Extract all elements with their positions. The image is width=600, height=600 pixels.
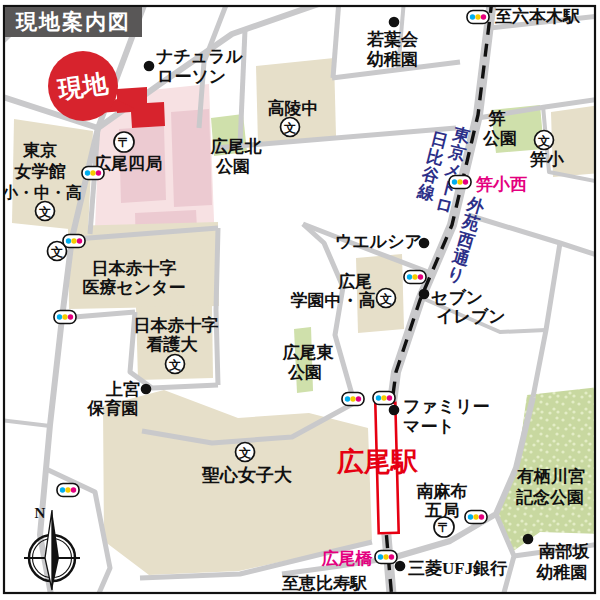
traffic-light-lamp [350, 396, 355, 401]
traffic-light-icon [57, 484, 79, 497]
map-label: 三菱UFJ銀行 [408, 559, 507, 578]
poi-dot [389, 405, 400, 416]
map-label: 有栖川宮 [516, 467, 585, 486]
school-icon-glyph: 文 [168, 358, 181, 372]
map-label: 南麻布 [417, 482, 468, 501]
traffic-light-lamp [85, 170, 90, 175]
traffic-light-icon [82, 167, 104, 180]
map-label: 東京 [22, 141, 57, 160]
map-label: 看護大 [146, 335, 199, 354]
traffic-light-lamp [452, 179, 457, 184]
compass-north-label: N [35, 505, 46, 521]
map-title: 現地案内図 [5, 7, 142, 37]
traffic-light-lamp [457, 179, 462, 184]
traffic-light-lamp [481, 14, 486, 19]
traffic-light-lamp [473, 514, 478, 519]
post-office-icon: 〒 [434, 517, 454, 537]
map-label: 女学館 [14, 162, 66, 181]
map-label: 至六本木駅 [495, 6, 581, 26]
post-office-icon-glyph: 〒 [118, 135, 131, 150]
road [533, 243, 560, 397]
poi-dot [523, 534, 534, 545]
traffic-light-lamp [57, 314, 62, 319]
traffic-light-lamp [71, 487, 76, 492]
traffic-light-lamp [66, 238, 71, 243]
map-label: ローソン [157, 67, 226, 86]
traffic-light-lamp [475, 14, 480, 19]
map-label: 小・中・高 [1, 183, 82, 201]
traffic-light-lamp [463, 179, 468, 184]
map-label: 日本赤十字 [134, 315, 219, 335]
road [0, 420, 50, 426]
map-label: 記念公園 [515, 488, 584, 507]
traffic-light-lamp [407, 274, 412, 279]
map-label-char: 線 [415, 181, 438, 204]
traffic-light-lamp [376, 395, 381, 400]
post-office-icon: 〒 [114, 132, 134, 152]
school-icon: 文 [535, 131, 554, 150]
poi-dot [141, 384, 152, 395]
poi-dot [419, 238, 430, 249]
traffic-light-icon [342, 393, 364, 406]
map-label: 高陵中 [268, 98, 319, 118]
traffic-light-lamp [345, 396, 350, 401]
map-label: 幼稚園 [366, 50, 418, 69]
traffic-light-lamp [378, 554, 383, 559]
map-label: 広尾北 [210, 137, 263, 156]
map-label: 笄 [488, 109, 506, 128]
compass-needle-east [52, 510, 59, 590]
poi-dot [395, 561, 406, 572]
map-label: マート [403, 417, 455, 436]
map-label: 幼稚園 [536, 563, 588, 582]
map-label: 広尾東 [282, 343, 335, 362]
map-label: 広尾 [337, 272, 372, 291]
traffic-light-lamp [479, 514, 484, 519]
map-label: 上宮 [105, 380, 140, 399]
compass: N [24, 505, 80, 590]
map-label: 公園 [287, 363, 322, 382]
school-icon: 文 [236, 443, 255, 462]
map-label: 聖心女子大 [201, 465, 292, 485]
traffic-light-icon [449, 176, 471, 189]
map-label-char: り [445, 264, 467, 287]
traffic-light-lamp [383, 554, 388, 559]
traffic-light-lamp [418, 274, 423, 279]
traffic-light-lamp [96, 170, 101, 175]
map-label: 広尾橋 [321, 549, 374, 568]
traffic-light-lamp [389, 554, 394, 559]
traffic-light-lamp [470, 14, 475, 19]
traffic-light-lamp [412, 274, 417, 279]
map-label: ウエルシア [335, 232, 422, 251]
traffic-light-lamp [62, 314, 67, 319]
traffic-light-lamp [90, 170, 95, 175]
map-label: 至恵比寿駅 [282, 574, 368, 593]
map-label: 笄小西 [475, 175, 527, 194]
map-label: ファミリー [403, 397, 490, 416]
map-label: 日本赤十字 [92, 258, 177, 278]
traffic-light-lamp [381, 395, 386, 400]
school-icon-glyph: 文 [238, 446, 251, 460]
traffic-light-icon [404, 271, 426, 284]
school-icon-glyph: 文 [50, 245, 63, 259]
map-label: 保育園 [87, 398, 139, 418]
traffic-light-icon [63, 235, 85, 248]
poi-dot [389, 17, 400, 28]
poi-dot [419, 289, 430, 300]
school-icon-glyph: 文 [379, 292, 392, 306]
traffic-light-icon [375, 551, 397, 564]
site-guide-map: ナチュラルローソン若葉会幼稚園至六本木駅高陵中広尾北公園笄公園笄小笄小西ウエルシ… [0, 0, 600, 600]
map-label: イレブン [436, 307, 506, 326]
school-icon: 文 [377, 289, 396, 308]
school-icon: 文 [166, 355, 185, 374]
school-icon-glyph: 文 [38, 205, 51, 219]
district-building [171, 109, 212, 207]
school-icon-glyph: 文 [537, 134, 550, 148]
traffic-light-lamp [387, 395, 392, 400]
map-label: セブン [431, 288, 483, 307]
road [468, 215, 600, 256]
map-label: 公園 [215, 157, 250, 176]
map-label: 公園 [482, 129, 517, 148]
map-title-text: 現地案内図 [16, 10, 131, 34]
traffic-light-icon [54, 311, 76, 324]
map-label: 広尾駅 [336, 447, 419, 477]
map-canvas: ナチュラルローソン若葉会幼稚園至六本木駅高陵中広尾北公園笄公園笄小笄小西ウエルシ… [0, 0, 600, 600]
road [333, 0, 339, 78]
post-office-icon-glyph: 〒 [438, 520, 451, 535]
map-label: ナチュラル [156, 47, 244, 66]
traffic-light-icon [373, 392, 395, 405]
traffic-light-lamp [65, 487, 70, 492]
map-label: 南部坂 [539, 542, 591, 561]
traffic-light-icon [465, 511, 487, 524]
traffic-light-lamp [68, 314, 73, 319]
school-icon: 文 [281, 118, 300, 137]
traffic-light-lamp [468, 514, 473, 519]
road [216, 228, 218, 385]
map-label: 医療センター [82, 277, 185, 297]
poi-dot [144, 61, 155, 72]
map-label: 若葉会 [366, 30, 419, 49]
traffic-light-lamp [356, 396, 361, 401]
school-icon-glyph: 文 [283, 121, 296, 135]
traffic-light-lamp [77, 238, 82, 243]
traffic-light-lamp [60, 487, 65, 492]
map-label: 笄小 [529, 150, 565, 169]
traffic-light-icon [467, 11, 489, 24]
map-layers: ナチュラルローソン若葉会幼稚園至六本木駅高陵中広尾北公園笄公園笄小笄小西ウエルシ… [0, 0, 600, 600]
map-label: 学園中・高 [291, 290, 376, 310]
school-icon: 文 [36, 202, 55, 221]
traffic-light-lamp [71, 238, 76, 243]
